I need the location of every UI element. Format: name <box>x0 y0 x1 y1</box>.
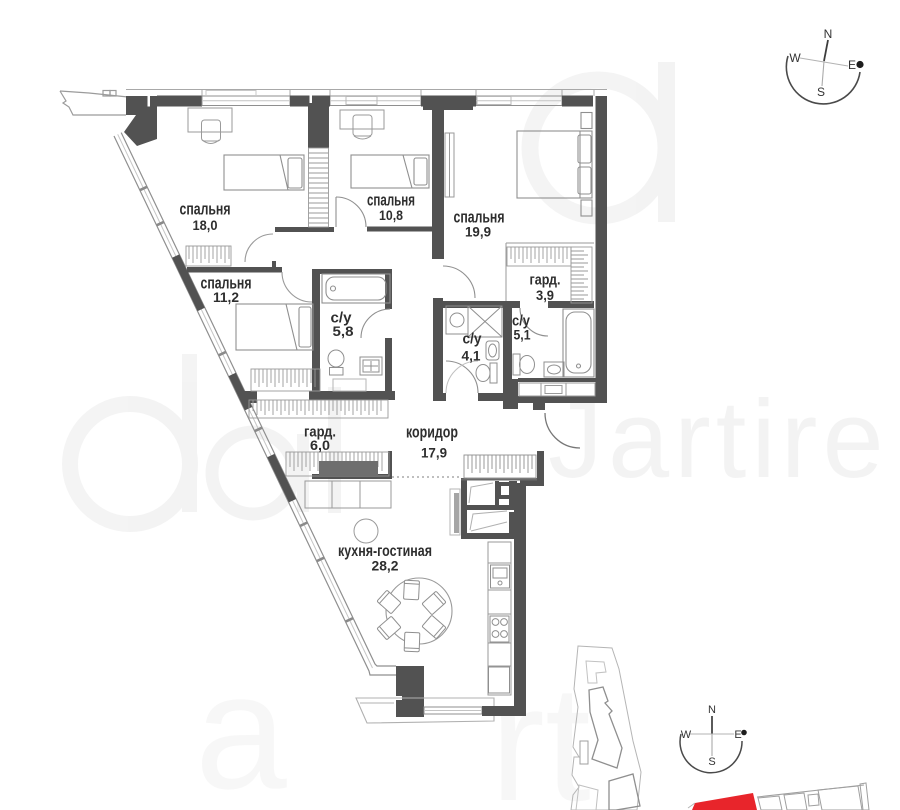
svg-text:гард.: гард. <box>530 272 561 289</box>
svg-text:10,8: 10,8 <box>379 208 403 223</box>
svg-text:6,0: 6,0 <box>310 438 330 453</box>
svg-text:19,9: 19,9 <box>465 225 491 240</box>
svg-text:4,1: 4,1 <box>462 349 481 364</box>
svg-text:спальня: спальня <box>367 191 415 210</box>
svg-text:5,1: 5,1 <box>514 328 531 343</box>
svg-text:W: W <box>681 729 692 741</box>
svg-text:18,0: 18,0 <box>193 218 218 233</box>
svg-text:спальня: спальня <box>180 200 231 219</box>
svg-text:a: a <box>195 639 287 810</box>
svg-text:E: E <box>734 729 741 741</box>
svg-text:E: E <box>848 58 856 72</box>
svg-text:N: N <box>708 704 716 716</box>
svg-text:5,8: 5,8 <box>333 324 355 339</box>
svg-text:кухня-гостиная: кухня-гостиная <box>338 543 432 560</box>
svg-text:N: N <box>824 27 833 41</box>
svg-text:3,9: 3,9 <box>536 288 554 303</box>
svg-text:S: S <box>708 756 715 768</box>
svg-text:17,9: 17,9 <box>421 446 447 461</box>
svg-text:S: S <box>817 85 825 99</box>
svg-text:W: W <box>789 51 801 65</box>
svg-text:с/у: с/у <box>463 331 483 348</box>
svg-text:28,2: 28,2 <box>372 559 399 574</box>
svg-text:коридор: коридор <box>406 423 458 442</box>
svg-text:11,2: 11,2 <box>213 290 239 305</box>
